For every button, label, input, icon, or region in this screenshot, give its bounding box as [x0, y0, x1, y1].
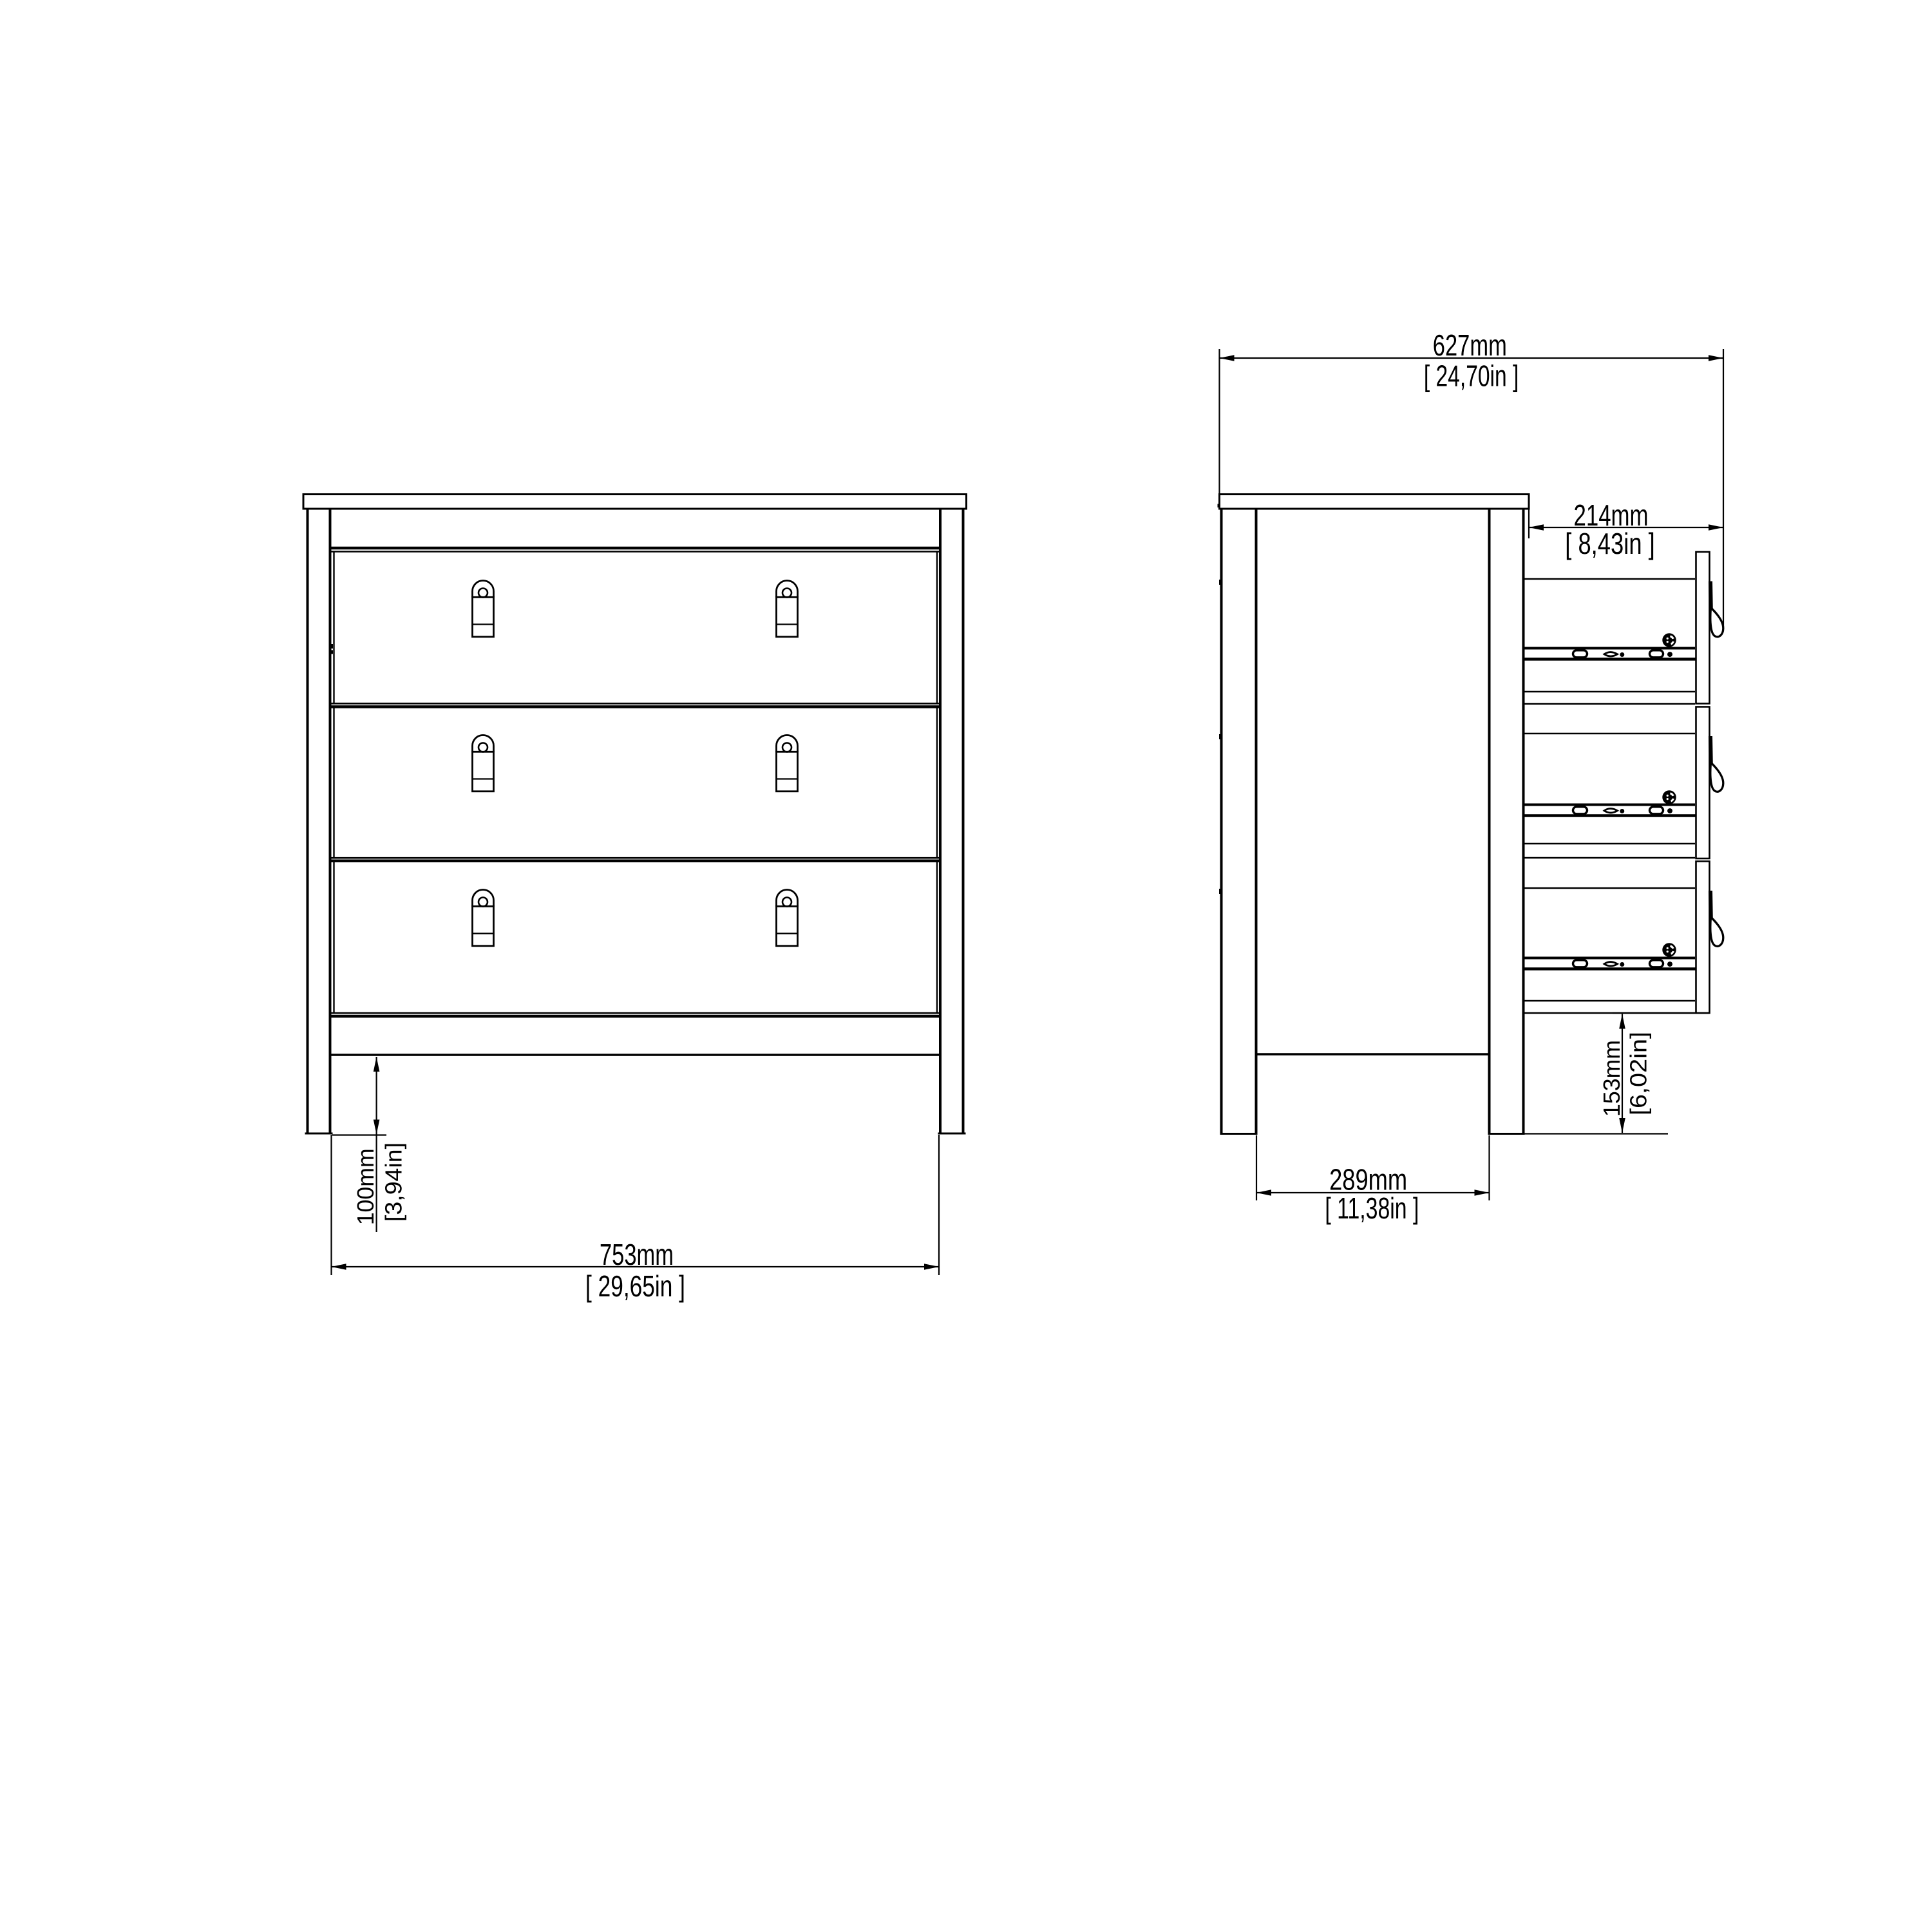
svg-text:[ 24,70in ]: [ 24,70in ]	[1424, 359, 1519, 393]
svg-text:[ 29,65in ]: [ 29,65in ]	[585, 1269, 685, 1303]
svg-text:[6,02in]: [6,02in]	[1625, 1032, 1652, 1115]
svg-text:627mm: 627mm	[1433, 328, 1507, 362]
svg-text:[ 11,38in ]: [ 11,38in ]	[1325, 1191, 1419, 1225]
svg-text:153mm: 153mm	[1598, 1040, 1625, 1117]
svg-text:100mm: 100mm	[352, 1148, 379, 1225]
svg-text:753mm: 753mm	[600, 1238, 674, 1271]
svg-text:[ 8,43in ]: [ 8,43in ]	[1565, 527, 1655, 560]
svg-text:[3,94in]: [3,94in]	[381, 1142, 407, 1222]
